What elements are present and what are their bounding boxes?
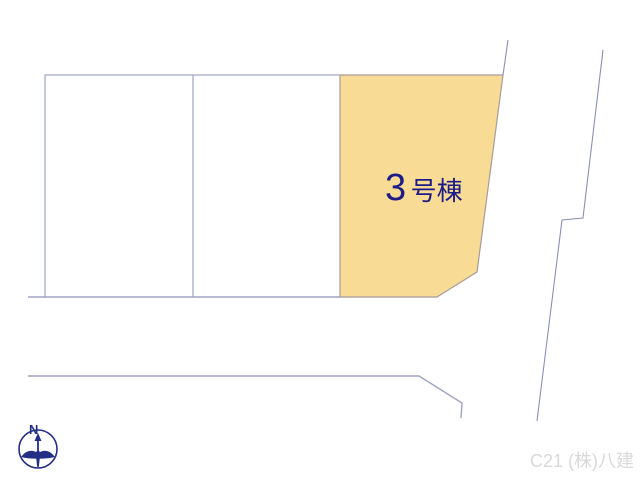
site-plan-drawing: 3 号棟 N C21 (株)八建 [0,0,640,480]
lot-2 [193,75,340,297]
lot-1 [45,75,193,297]
watermark-text: C21 (株)八建 [530,451,634,471]
compass-n-label: N [29,422,38,437]
road-edge-bottom [28,376,462,418]
lot-3-label-number: 3 [385,167,406,209]
boundary-line-right [537,50,603,421]
compass-tail [36,458,40,467]
compass-wings [21,450,55,459]
boundary-line-upper-right [503,40,508,75]
lot-3-label-suffix: 号棟 [411,176,463,206]
site-plan-map: 3 号棟 N C21 (株)八建 [0,0,640,480]
compass-north-icon: N [19,422,57,468]
